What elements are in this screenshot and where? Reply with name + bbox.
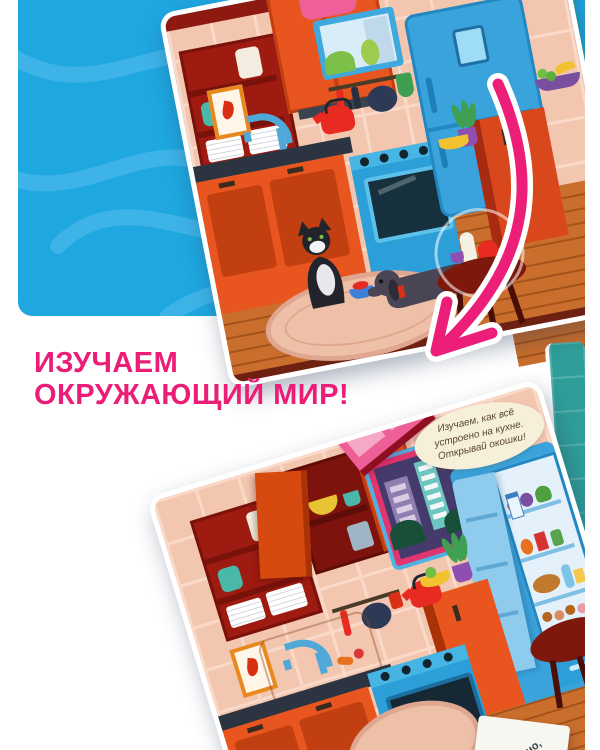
pepper	[519, 537, 535, 556]
jug-in-cabinet	[346, 520, 375, 551]
roast-turkey	[531, 571, 563, 596]
glass-shine	[378, 175, 417, 195]
carrot	[337, 657, 353, 665]
door-shelf	[466, 512, 498, 523]
table-leg	[456, 291, 464, 335]
window-sky	[319, 13, 397, 73]
cabinet-handle	[501, 129, 509, 146]
headline: ИЗУЧАЕМ ОКРУЖАЮЩИЙ МИР!	[34, 348, 349, 412]
open-cabinet-door	[255, 470, 312, 579]
pickle-jar	[549, 528, 564, 547]
plant-leaf	[459, 534, 468, 560]
left-margin	[0, 0, 18, 750]
headline-line1: ИЗУЧАЕМ	[34, 348, 349, 380]
drawer-handle	[247, 724, 264, 733]
plate-stack	[226, 597, 267, 629]
door-shelf	[476, 561, 508, 572]
headline-line2: ОКРУЖАЮЩИЙ МИР!	[34, 380, 349, 412]
leaf-art	[221, 101, 235, 120]
right-margin	[585, 0, 600, 750]
bottle	[560, 563, 576, 589]
fridge-handle	[425, 77, 438, 113]
storage-jar	[234, 46, 263, 80]
cabinet-panel	[206, 184, 277, 277]
sausage	[564, 604, 576, 616]
building-windows	[418, 463, 448, 523]
strawberry	[353, 647, 365, 659]
bush	[323, 49, 357, 76]
kitchen-timer	[216, 564, 244, 593]
broccoli	[533, 484, 553, 504]
plant-pot	[451, 561, 473, 583]
cabinet-handle	[452, 605, 461, 622]
caution-flap-text: Осторожно, горячо!	[476, 731, 562, 750]
leaf-art	[247, 658, 259, 677]
juice-box	[534, 531, 550, 551]
plant-leaf	[467, 103, 476, 127]
curtain-panel	[363, 378, 418, 431]
product-image: Осторожно, горячо! Изучаем, как всё устр…	[0, 0, 600, 750]
drawer-handle	[218, 181, 235, 189]
sausage	[553, 609, 565, 621]
bottom-spread-kitchen-open: Осторожно, горячо! Изучаем, как всё устр…	[146, 378, 600, 750]
fridge-display	[452, 24, 491, 67]
stool-leg	[550, 660, 563, 708]
sausage	[541, 611, 553, 623]
drawer-handle	[287, 166, 304, 174]
